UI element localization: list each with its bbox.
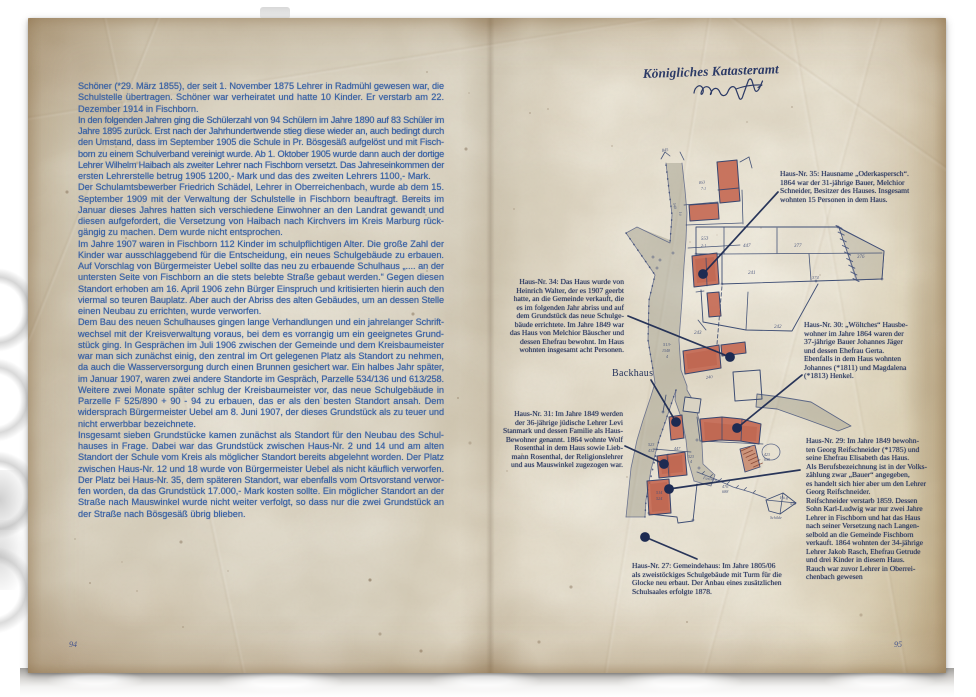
svg-text:447: 447 (674, 446, 681, 451)
svg-text:4: 4 (666, 354, 668, 359)
svg-text:240: 240 (705, 374, 713, 380)
svg-text:523: 523 (648, 442, 654, 447)
svg-text:Königliches Katasteramt: Königliches Katasteramt (642, 61, 780, 81)
svg-text:1a: 1a (678, 211, 683, 216)
svg-text:242: 242 (774, 325, 782, 330)
svg-text:Schilde: Schilde (770, 515, 782, 520)
svg-text:4: 4 (690, 459, 692, 464)
svg-text:540: 540 (672, 202, 678, 209)
svg-text:553: 553 (701, 236, 709, 242)
svg-text:374: 374 (812, 275, 820, 280)
svg-text:458: 458 (790, 501, 796, 506)
svg-text:243: 243 (694, 331, 702, 336)
svg-text:7:1: 7:1 (701, 187, 706, 191)
svg-text:Hü.g: Hü.g (779, 495, 788, 500)
svg-text:845: 845 (661, 147, 669, 153)
svg-text:524: 524 (656, 496, 662, 501)
svg-text:376: 376 (857, 255, 865, 260)
svg-text:2:1: 2:1 (701, 243, 706, 248)
svg-text:241: 241 (748, 271, 756, 276)
svg-text:514: 514 (656, 490, 662, 495)
svg-text:513-: 513- (663, 342, 672, 347)
svg-text:853: 853 (699, 179, 706, 185)
svg-text:432: 432 (648, 448, 654, 453)
svg-text:377: 377 (794, 244, 802, 249)
svg-text:1548: 1548 (662, 348, 670, 353)
svg-text:447: 447 (743, 244, 751, 249)
svg-text:688: 688 (722, 489, 729, 494)
